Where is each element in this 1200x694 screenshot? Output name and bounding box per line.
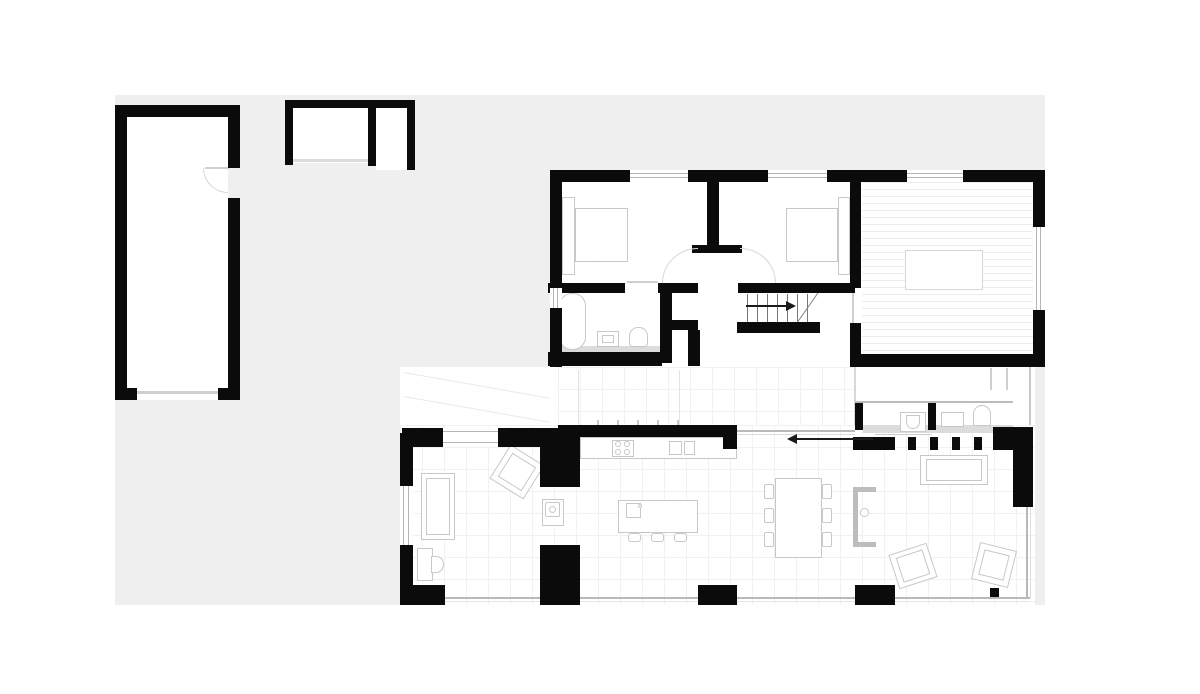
window	[768, 170, 827, 182]
entry-step-line	[875, 434, 932, 435]
window	[907, 170, 963, 182]
toilet	[629, 327, 648, 347]
master-west-wall-lower	[850, 323, 861, 367]
bath-sink-basin	[602, 335, 614, 343]
garage-wall-right-upper	[228, 105, 240, 168]
south-pier	[698, 585, 737, 605]
window-glass	[1040, 227, 1041, 310]
entry-screen-slat	[974, 437, 982, 450]
entry-arrow-line	[797, 438, 873, 440]
closet-wall-mid	[660, 320, 698, 330]
fireplace-bottom	[853, 542, 876, 547]
window-glass	[557, 288, 558, 308]
bar-stool	[628, 533, 641, 542]
dining-chair	[764, 532, 774, 547]
deck-floor	[558, 367, 855, 425]
snug-west-wall-lower	[400, 545, 413, 587]
bed2-shelf	[838, 197, 850, 275]
fireplace-top	[853, 487, 876, 492]
bath-door-leaf	[627, 281, 658, 283]
stair-tread	[767, 294, 768, 322]
glazing-south	[895, 597, 1030, 599]
void-rect	[905, 250, 983, 290]
deck-post-line	[679, 370, 680, 425]
window-glass	[553, 288, 554, 308]
hall-door-line	[990, 368, 992, 390]
bedroom-divider-cap	[692, 245, 742, 253]
window	[630, 170, 688, 182]
deck-post-line	[578, 370, 579, 425]
bed2	[786, 208, 838, 262]
hall-glazing	[1029, 367, 1031, 425]
column	[990, 588, 999, 597]
house-wall-east-lower	[1033, 310, 1045, 367]
glazing-south	[445, 597, 542, 599]
hall-door-line	[1006, 368, 1008, 390]
burner	[624, 441, 630, 447]
master-south-wall	[856, 354, 1034, 367]
stairs-south-wall	[737, 322, 820, 333]
glazing-east	[1026, 507, 1028, 598]
window-glass	[443, 442, 498, 443]
stair-tread	[757, 294, 758, 322]
shed-wall-right	[407, 108, 415, 170]
shed-wall-top	[285, 100, 415, 108]
burner	[624, 449, 630, 455]
south-pier	[855, 585, 895, 605]
garage-door-gap	[137, 388, 218, 400]
window-glass	[630, 173, 688, 174]
kitchen-sink-right	[684, 441, 695, 455]
bedroom1-south-wall	[658, 283, 698, 293]
house-wall-north	[550, 170, 630, 182]
window	[400, 486, 413, 545]
garage-floor	[127, 117, 228, 388]
window-glass	[630, 177, 688, 178]
stove-flue-dot	[549, 506, 556, 513]
window-glass	[1036, 227, 1037, 310]
wc-wall-mid	[928, 403, 936, 430]
shed-wall-divider	[368, 100, 376, 166]
garage-door-line	[137, 391, 218, 394]
burner	[615, 441, 621, 447]
stairs-up-arrow-line	[746, 305, 786, 307]
stairs-north-wall	[738, 283, 855, 293]
dining-chair	[764, 508, 774, 523]
kitchen-wall-end	[723, 425, 737, 449]
shed-wall-left	[285, 100, 293, 165]
window-glass	[768, 173, 827, 174]
bed1-shelf	[562, 197, 575, 275]
bar-stool	[674, 533, 687, 542]
window-glass	[907, 177, 963, 178]
wc-counter	[863, 425, 1013, 433]
bed1	[575, 208, 628, 262]
window	[1033, 227, 1045, 310]
window-glass	[768, 177, 827, 178]
garage-wall-top	[115, 105, 240, 117]
window-glass	[408, 486, 409, 545]
closet-wall-right	[688, 330, 700, 366]
garage-wall-bottom-right	[218, 388, 240, 400]
house-wall-east-upper	[1033, 170, 1045, 227]
house-wall-north	[688, 170, 768, 182]
snug-corner-wall	[400, 585, 445, 605]
dining-chair	[764, 484, 774, 499]
wc-sink	[941, 412, 964, 427]
house-wall-west-upper	[550, 170, 562, 288]
glazing-sill	[445, 601, 1030, 602]
burner	[615, 449, 621, 455]
window	[550, 288, 562, 308]
kitchen-counter	[580, 437, 737, 459]
floor-plan-canvas	[0, 0, 1200, 694]
dining-chair	[822, 508, 832, 523]
garage-wall-right-lower	[228, 198, 240, 400]
stair-tread	[777, 294, 778, 322]
window-glass	[443, 431, 498, 432]
entry-screen-slat	[952, 437, 960, 450]
fireplace-dot	[860, 508, 869, 517]
entry-screen-slat	[930, 437, 938, 450]
snug-west-wall-upper	[400, 433, 413, 486]
entry-screen-slat	[908, 437, 916, 450]
east-wall-block	[1013, 427, 1033, 507]
snug-sofa-seat	[426, 478, 450, 535]
stair-tread	[797, 294, 798, 322]
shed-floor-left	[293, 108, 368, 163]
wc-wall-left	[855, 403, 863, 430]
shed-floor-right	[376, 108, 407, 170]
bathtub	[559, 293, 586, 350]
dining-chair	[822, 532, 832, 547]
bedroom-divider-wall	[707, 182, 719, 245]
bath-south-wall	[548, 352, 662, 366]
dining-table	[775, 478, 822, 558]
kitchen-north-wall	[558, 425, 723, 437]
wc-basin	[973, 405, 991, 426]
kitchen-sink-left	[669, 441, 682, 455]
island-faucet	[638, 504, 642, 508]
window-glass	[907, 173, 963, 174]
garage-wall-bottom-left	[115, 388, 137, 400]
dining-chair	[822, 484, 832, 499]
stairhall-door-leaf	[852, 290, 854, 323]
stair-tread	[747, 294, 748, 322]
glazing-south	[737, 597, 855, 599]
fireplace-side	[853, 487, 858, 547]
shed-opening-line	[293, 159, 368, 162]
sliding-door-line	[737, 430, 855, 432]
entry-arrow-head	[787, 434, 797, 444]
master-west-wall-upper	[850, 182, 861, 288]
window-glass	[403, 486, 404, 545]
chimney-wall-lower	[540, 545, 580, 605]
house-wall-north	[827, 170, 907, 182]
bar-stool	[651, 533, 664, 542]
washer-drum	[906, 415, 920, 429]
glazing-south	[580, 597, 698, 599]
garage-wall-left	[115, 105, 127, 400]
stairs-up-arrow-head	[786, 301, 796, 311]
sofa-seat	[926, 459, 982, 481]
glazing-east	[1030, 507, 1031, 598]
